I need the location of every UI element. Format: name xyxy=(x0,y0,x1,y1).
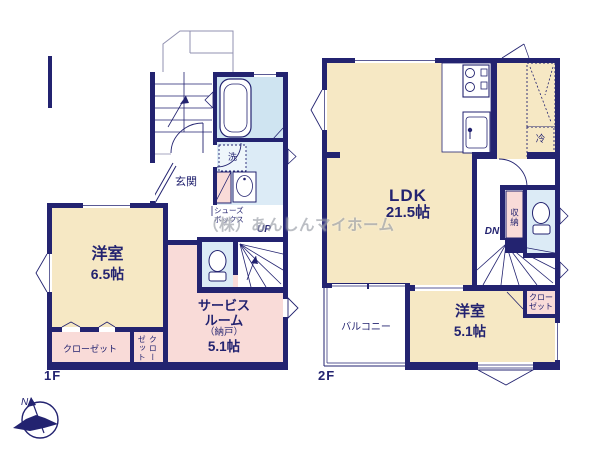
refrigerator-label: 冷 xyxy=(527,135,554,146)
service-size: 5.1帖 xyxy=(168,339,280,354)
stove-icon xyxy=(463,65,489,97)
pantry-box xyxy=(527,63,555,127)
room-name: 洋室 xyxy=(52,246,163,264)
entrance-door-arc xyxy=(155,123,203,154)
service-line2: ルーム xyxy=(168,314,280,329)
ldk-name: LDK xyxy=(348,186,468,205)
closet-1f-label: クローゼット xyxy=(50,344,130,354)
ldk-floor-upper xyxy=(327,63,555,159)
balcony-label: バルコニー xyxy=(326,322,406,333)
compass-north-label: N xyxy=(21,397,29,408)
vanity-sink-icon xyxy=(233,172,256,202)
toilet-icon-1f xyxy=(209,251,226,282)
stairs-down-label: DN xyxy=(477,226,507,237)
floor2-tag: 2F xyxy=(318,369,335,384)
kitchen-sink-icon xyxy=(463,112,490,153)
floorplan-canvas: N 洋室 6.5帖 サービス ルーム （納戸） 5.1帖 クローゼット クローゼ… xyxy=(0,0,600,449)
service-line3: （納戸） xyxy=(168,328,280,339)
closet-2f-label: クロー ゼット xyxy=(527,294,555,312)
western-room-1f-label: 洋室 6.5帖 xyxy=(52,246,163,283)
laundry-label: 洗 xyxy=(219,152,246,162)
room-size: 6.5帖 xyxy=(52,267,163,283)
compass-icon: N xyxy=(13,397,58,438)
closet-line2: ゼット xyxy=(527,303,555,312)
staircase-upper-outline xyxy=(163,31,233,72)
service-room-label: サービス ルーム （納戸） 5.1帖 xyxy=(168,299,280,354)
front-door-opening xyxy=(150,163,155,201)
room-name: 洋室 xyxy=(408,304,532,321)
entrance-label: 玄関 xyxy=(163,176,209,188)
bathtub-icon xyxy=(220,79,251,137)
room-size: 5.1帖 xyxy=(408,324,532,339)
toilet-icon-2f xyxy=(533,203,551,235)
shoe-box-icon xyxy=(215,172,231,203)
service-line1: サービス xyxy=(168,299,280,314)
storage-2f-label: 収納 xyxy=(509,199,519,235)
western-room-2f-label: 洋室 5.1帖 xyxy=(408,304,532,339)
bathroom-door-icon xyxy=(205,92,213,108)
watermark: （株）あんしんマイホーム xyxy=(203,213,403,235)
floor1-tag: 1F xyxy=(44,369,61,384)
closet-1f-side-label: クローゼット xyxy=(136,333,158,363)
